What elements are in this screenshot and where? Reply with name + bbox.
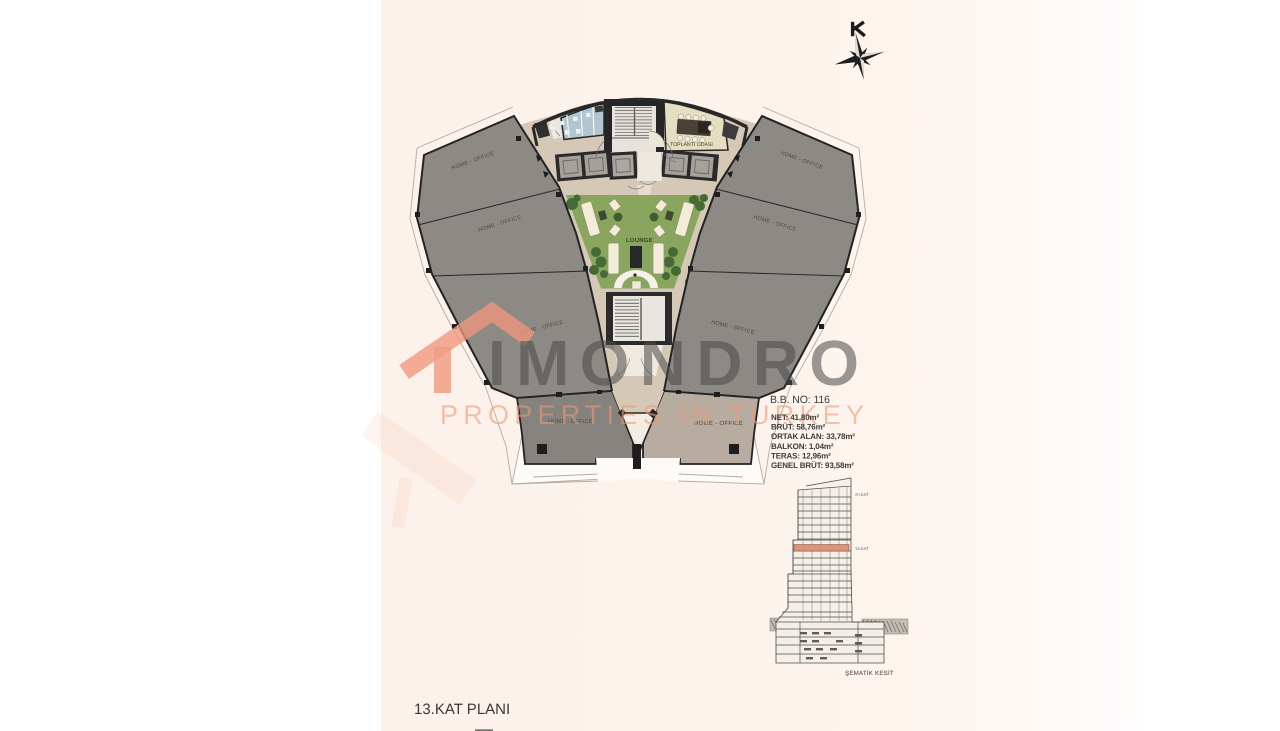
- svg-text:B.B. NO: 116: B.B. NO: 116: [770, 394, 830, 406]
- svg-text:NET: 41,80m²: NET: 41,80m²: [771, 413, 819, 422]
- svg-text:ŞEMATİK KESİT: ŞEMATİK KESİT: [845, 669, 894, 677]
- svg-text:13.KAT: 13.KAT: [855, 546, 869, 551]
- svg-text:BRÜT: 58,76m²: BRÜT: 58,76m²: [771, 423, 826, 432]
- svg-text:BALKON: 1,04m²: BALKON: 1,04m²: [771, 442, 834, 451]
- svg-text:ORTAK ALAN: 33,78m²: ORTAK ALAN: 33,78m²: [771, 432, 855, 441]
- svg-text:GENEL BRÜT: 93,58m²: GENEL BRÜT: 93,58m²: [771, 461, 854, 470]
- svg-text:20.KAT: 20.KAT: [855, 492, 869, 497]
- svg-text:IMONDRO: IMONDRO: [488, 327, 868, 399]
- svg-text:LOUNGE: LOUNGE: [626, 237, 653, 244]
- svg-text:TERAS: 12,96m²: TERAS: 12,96m²: [771, 451, 831, 460]
- svg-text:TOPLANTI ODASI: TOPLANTI ODASI: [670, 142, 713, 148]
- svg-text:13.KAT PLANI: 13.KAT PLANI: [414, 701, 510, 718]
